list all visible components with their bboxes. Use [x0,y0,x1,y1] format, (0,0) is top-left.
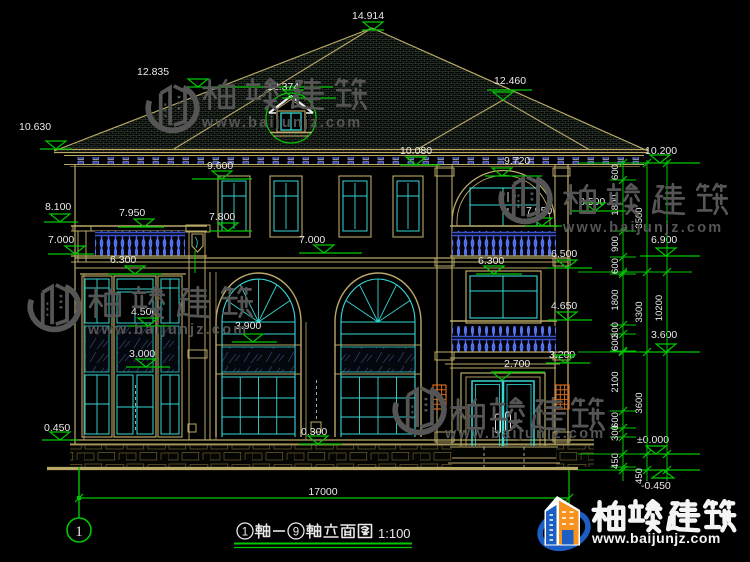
svg-text:6.300: 6.300 [478,255,504,267]
svg-text:4.650: 4.650 [551,300,577,312]
svg-text:www.baijunjz.com: www.baijunjz.com [444,426,605,442]
svg-text:7.000: 7.000 [299,234,325,246]
svg-text:7.000: 7.000 [48,234,74,246]
svg-text:2.700: 2.700 [504,358,530,370]
svg-text:7.800: 7.800 [209,211,235,223]
svg-text:www.baijunjz.com: www.baijunjz.com [201,115,362,131]
svg-text:450: 450 [610,453,621,469]
svg-text:1800: 1800 [610,289,621,310]
svg-text:1: 1 [242,527,248,539]
svg-text:17000: 17000 [308,486,337,498]
svg-text:7.950: 7.950 [119,207,145,219]
svg-text:1:100: 1:100 [378,526,411,541]
svg-text:8.100: 8.100 [45,201,71,213]
svg-text:14.914: 14.914 [352,10,384,22]
svg-text:9: 9 [293,527,299,539]
svg-text:6.300: 6.300 [110,254,136,266]
svg-text:600: 600 [610,335,621,351]
svg-text:450: 450 [634,468,645,484]
svg-text:10.080: 10.080 [400,145,432,157]
svg-text:3.600: 3.600 [651,329,677,341]
svg-text:10.630: 10.630 [19,121,51,133]
svg-text:9.720: 9.720 [504,155,530,167]
svg-text:-0.450: -0.450 [641,480,671,492]
svg-text:12.460: 12.460 [494,75,526,87]
svg-text:10200: 10200 [654,295,665,321]
svg-text:www.baijunjz.com: www.baijunjz.com [591,530,721,546]
svg-text:6.500: 6.500 [551,248,577,260]
svg-text:3.000: 3.000 [129,348,155,360]
svg-text:600: 600 [610,258,621,274]
svg-text:±0.000: ±0.000 [637,434,669,446]
svg-text:2100: 2100 [610,371,621,392]
svg-text:3600: 3600 [634,392,645,413]
svg-text:3300: 3300 [634,301,645,322]
svg-text:900: 900 [610,236,621,252]
svg-text:www.baijunjz.com: www.baijunjz.com [562,220,723,236]
svg-text:600: 600 [610,164,621,180]
svg-text:1: 1 [75,524,83,540]
svg-text:300: 300 [610,425,621,441]
svg-text:9.600: 9.600 [207,160,233,172]
svg-text:12.835: 12.835 [137,66,169,78]
svg-text:www.baijunjz.com: www.baijunjz.com [87,322,248,338]
